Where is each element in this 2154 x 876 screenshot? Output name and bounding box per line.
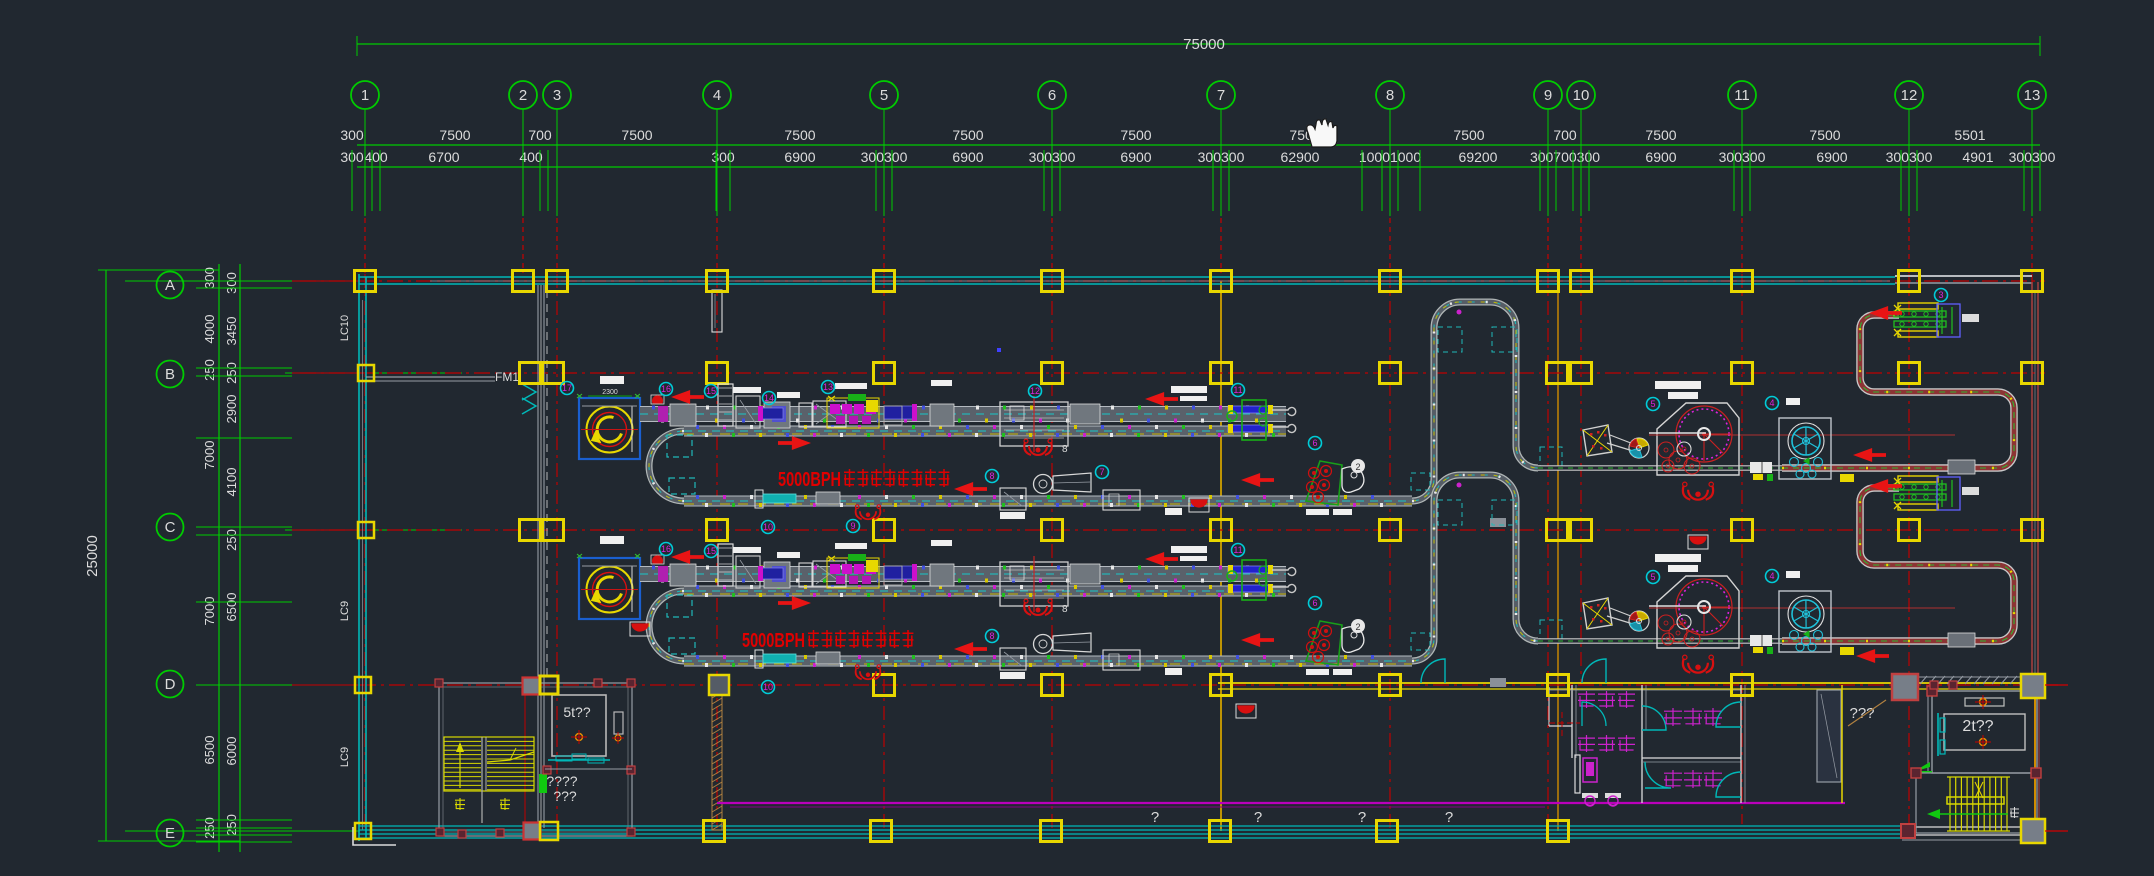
svg-text:10: 10	[763, 682, 773, 692]
svg-text:8: 8	[989, 631, 994, 641]
svg-text:6: 6	[1312, 438, 1317, 448]
svg-text:25000: 25000	[84, 535, 101, 577]
svg-text:6900: 6900	[1816, 149, 1847, 165]
svg-text:6500: 6500	[202, 736, 217, 765]
svg-text:D: D	[165, 676, 176, 693]
svg-text:4000: 4000	[202, 315, 217, 344]
svg-text:4: 4	[713, 87, 721, 104]
svg-text:7000: 7000	[202, 597, 217, 626]
svg-text:700: 700	[528, 127, 552, 143]
svg-text:700: 700	[1553, 127, 1577, 143]
svg-text:2: 2	[1355, 462, 1360, 472]
svg-text:6500: 6500	[224, 593, 239, 622]
svg-text:3450: 3450	[224, 317, 239, 346]
svg-text:5: 5	[880, 87, 888, 104]
svg-text:7500: 7500	[439, 127, 470, 143]
svg-text:6900: 6900	[952, 149, 983, 165]
svg-text:?: ?	[1254, 809, 1262, 826]
svg-text:???: ???	[1849, 705, 1874, 722]
svg-text:7000: 7000	[202, 441, 217, 470]
svg-text:?: ?	[1151, 809, 1159, 826]
svg-text:2900: 2900	[224, 395, 239, 424]
svg-text:4: 4	[1769, 398, 1774, 408]
svg-text:?: ?	[1445, 809, 1453, 826]
svg-text:4901: 4901	[1962, 149, 1993, 165]
svg-text:12: 12	[1901, 87, 1918, 104]
svg-text:6900: 6900	[1120, 149, 1151, 165]
svg-text:10: 10	[1573, 87, 1590, 104]
svg-text:2t??: 2t??	[1962, 718, 1993, 735]
svg-text:6: 6	[1048, 87, 1056, 104]
svg-text:400: 400	[364, 149, 388, 165]
svg-text:8: 8	[1062, 444, 1068, 455]
svg-text:LC10: LC10	[339, 315, 351, 341]
svg-text:?: ?	[1358, 809, 1366, 826]
svg-text:3: 3	[553, 87, 561, 104]
svg-text:12: 12	[1030, 386, 1040, 396]
svg-text:7500: 7500	[1645, 127, 1676, 143]
svg-text:5: 5	[1650, 572, 1655, 582]
svg-text:FM1: FM1	[495, 370, 519, 384]
svg-text:11: 11	[1734, 87, 1750, 104]
svg-text:7500: 7500	[952, 127, 983, 143]
svg-text:6900: 6900	[1645, 149, 1676, 165]
svg-text:5000BPH: 5000BPH	[742, 630, 805, 652]
svg-text:250: 250	[224, 814, 239, 836]
svg-text:300: 300	[711, 149, 735, 165]
svg-text:300: 300	[340, 127, 364, 143]
svg-text:2300: 2300	[602, 389, 618, 396]
svg-text:16: 16	[661, 544, 671, 554]
svg-text:11: 11	[1233, 385, 1242, 395]
svg-text:4100: 4100	[224, 468, 239, 497]
svg-text:15: 15	[706, 386, 716, 396]
svg-text:LC9: LC9	[339, 747, 351, 767]
svg-text:9: 9	[850, 521, 855, 531]
svg-text:7500: 7500	[784, 127, 815, 143]
svg-text:7500: 7500	[1453, 127, 1484, 143]
svg-text:5501: 5501	[1954, 127, 1985, 143]
svg-text:2: 2	[519, 87, 527, 104]
svg-text:14: 14	[764, 393, 774, 403]
svg-text:13: 13	[823, 382, 833, 392]
svg-text:6000: 6000	[224, 737, 239, 766]
svg-text:7500: 7500	[621, 127, 652, 143]
svg-text:17: 17	[562, 383, 572, 393]
svg-text:250: 250	[224, 529, 239, 551]
svg-text:6700: 6700	[428, 149, 459, 165]
svg-text:A: A	[165, 277, 175, 294]
svg-text:5: 5	[1650, 399, 1655, 409]
svg-text:8: 8	[989, 471, 994, 481]
svg-text:5000BPH: 5000BPH	[778, 469, 841, 491]
svg-text:8: 8	[1062, 604, 1068, 615]
svg-text:11: 11	[1233, 545, 1242, 555]
svg-text:16: 16	[661, 384, 671, 394]
svg-text:????: ????	[546, 773, 577, 789]
svg-text:7: 7	[1217, 87, 1225, 104]
svg-text:69200: 69200	[1459, 149, 1498, 165]
svg-text:2: 2	[1355, 622, 1360, 632]
svg-text:62900: 62900	[1281, 149, 1320, 165]
svg-text:8: 8	[1386, 87, 1394, 104]
svg-text:10: 10	[763, 522, 773, 532]
svg-text:250: 250	[224, 362, 239, 384]
svg-text:300: 300	[224, 272, 239, 294]
svg-text:7500: 7500	[1120, 127, 1151, 143]
svg-text:9: 9	[1544, 87, 1552, 104]
svg-text:250: 250	[202, 359, 217, 381]
svg-text:15: 15	[706, 546, 716, 556]
svg-text:75000: 75000	[1183, 36, 1225, 53]
svg-text:3: 3	[1938, 290, 1943, 300]
svg-text:E: E	[165, 825, 175, 842]
svg-text:1: 1	[361, 87, 369, 104]
svg-text:5t??: 5t??	[563, 704, 590, 720]
svg-text:C: C	[165, 519, 176, 536]
svg-text:300700300: 300700300	[1530, 149, 1600, 165]
svg-text:13: 13	[2024, 87, 2041, 104]
svg-text:4: 4	[1769, 571, 1774, 581]
svg-text:LC9: LC9	[339, 601, 351, 621]
svg-text:B: B	[165, 366, 175, 383]
svg-text:6: 6	[1312, 598, 1317, 608]
svg-text:7: 7	[1099, 467, 1104, 477]
svg-text:???: ???	[553, 788, 577, 804]
svg-text:6900: 6900	[784, 149, 815, 165]
svg-text:7500: 7500	[1809, 127, 1840, 143]
